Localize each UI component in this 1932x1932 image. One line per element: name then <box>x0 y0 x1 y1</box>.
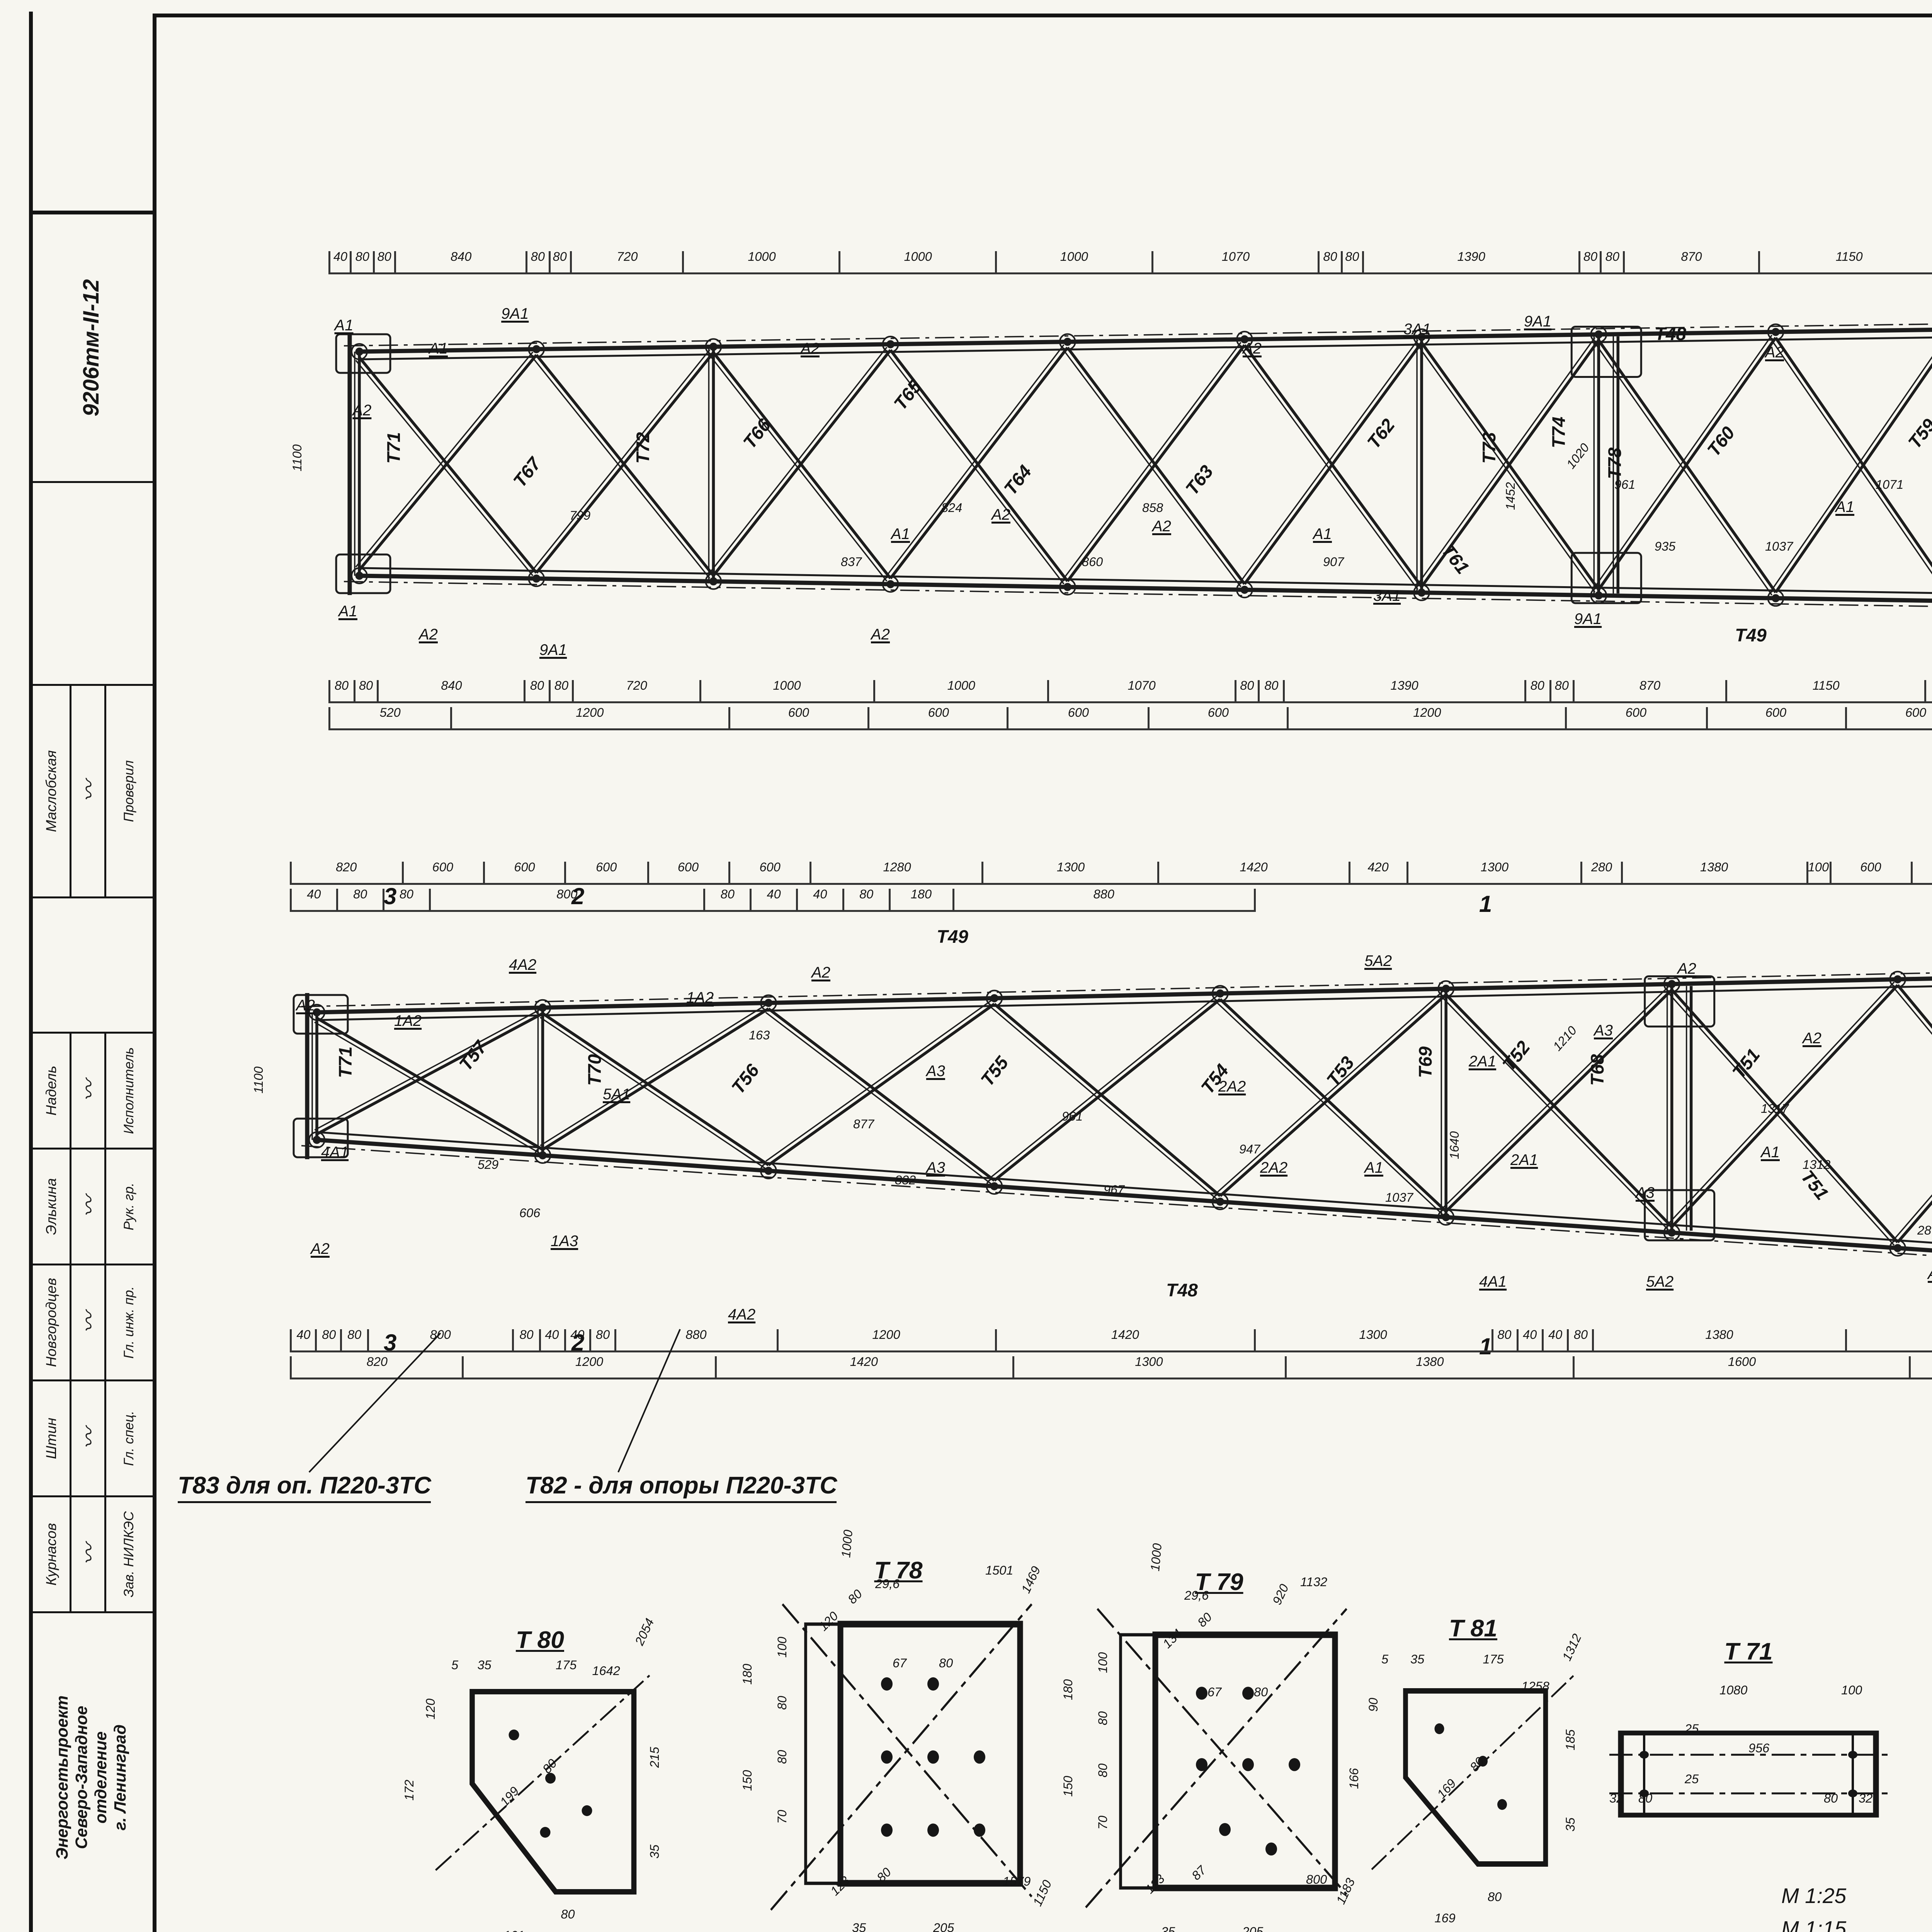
detail-t71: Т 71 1080100259562532808032 <box>1604 1638 1893 1880</box>
dimension-segment: 80 <box>548 251 570 272</box>
dimension-segment: 80 <box>341 1329 366 1350</box>
approval-name: Элькина <box>33 1150 71 1264</box>
t71-bar-shape <box>1604 1665 1893 1859</box>
stamp-rotated-content: Энергосетьпроект Северо-Западное отделен… <box>33 14 153 1932</box>
dimension-segment: 1280 <box>810 862 982 883</box>
dimension-segment: 1310 <box>1908 1356 1932 1378</box>
dimension-segment: 600 <box>1829 862 1911 883</box>
top-truss-drawing <box>328 286 1932 672</box>
dimension-segment: 80 <box>328 680 353 701</box>
checked-name: Маслобская <box>33 686 71 896</box>
dimension-segment: 80 <box>353 680 377 701</box>
dimension-segment: 40 <box>1542 1329 1567 1350</box>
approval-role: Гл. спец. <box>106 1381 153 1495</box>
dimension-segment: 80 <box>372 251 395 272</box>
detail-t78-title: Т 78 <box>753 1557 1043 1584</box>
approval-role: Зав. НИЛКЭС <box>106 1497 153 1611</box>
dimension-segment: 800 <box>366 1329 513 1350</box>
dimension-segment: 1390 <box>1362 251 1578 272</box>
dimension-segment: 1200 <box>450 707 728 728</box>
approval-signature: 〰 <box>71 1150 106 1264</box>
dimension-segment: 1420 <box>995 1329 1253 1350</box>
top-truss-dims-bot2: 52012006006006006001200600600600600910 <box>328 707 1932 730</box>
dimension-segment: 820 <box>290 862 401 883</box>
dimension-segment: 40 <box>290 1329 315 1350</box>
top-truss-dims-top: 4080808408080720100010001000107080801390… <box>328 251 1932 274</box>
dimension-segment: 80 <box>1318 251 1340 272</box>
dimension-segment: 80 <box>1567 1329 1593 1350</box>
dimension-segment: 40 <box>750 889 796 910</box>
dimension-segment: 80 <box>1340 251 1362 272</box>
dimension-segment: 600 <box>565 862 646 883</box>
dimension-segment: 40 <box>538 1329 564 1350</box>
scale-1: М 1:25 <box>1781 1882 1846 1914</box>
dimension-segment: 1600 <box>1844 1329 1932 1350</box>
dimension-segment: 600 <box>401 862 483 883</box>
detail-t81: Т 81 5351759016618535169808016913121258 <box>1352 1615 1594 1924</box>
org-name-1: Энергосетьпроект <box>55 1696 74 1860</box>
dimension-segment: 1000 <box>839 251 995 272</box>
bottom-truss-dims-top2: 40808080080404080180880 <box>290 889 1256 912</box>
dimension-segment: 1300 <box>1406 862 1581 883</box>
dimension-segment: 600 <box>1911 862 1932 883</box>
dimension-segment: 40 <box>290 889 336 910</box>
stamp-blank-1 <box>33 898 153 1034</box>
dimension-segment: 1300 <box>982 862 1157 883</box>
drawing-label: 35 <box>852 1923 866 1932</box>
approval-name: Штин <box>33 1381 71 1495</box>
approval-signature: 〰 <box>71 1381 106 1495</box>
bottom-truss-dims-bot2: 820120014201300138016001310910 <box>290 1356 1932 1379</box>
dimension-segment: 280 <box>1581 862 1620 883</box>
t82-note-text: Т82 - для опоры П220-3ТС <box>526 1472 837 1503</box>
dimension-segment: 600 <box>1845 707 1932 728</box>
approval-signature: 〰 <box>71 1497 106 1611</box>
dimension-segment: 600 <box>646 862 728 883</box>
dimension-segment: 1200 <box>776 1329 995 1350</box>
dimension-segment: 1450 <box>1925 680 1932 701</box>
approval-row: Элькина〰Рук. гр. <box>33 1148 153 1264</box>
bottom-truss-dims-top: 8206006006006006001280130014204201300280… <box>290 862 1932 885</box>
approval-table: Курнасов〰Зав. НИЛКЭСШтин〰Гл. спец.Новгор… <box>33 1034 153 1613</box>
dimension-segment: 1000 <box>873 680 1048 701</box>
dimension-segment: 80 <box>548 680 573 701</box>
drawing-label: 169 <box>1435 1913 1456 1926</box>
scale-notes: М 1:25 М 1:15 <box>1781 1882 1846 1932</box>
approval-role: Исполнитель <box>106 1034 153 1148</box>
dimension-segment: 1070 <box>1048 680 1234 701</box>
dimension-segment: 600 <box>1705 707 1845 728</box>
dimension-segment: 80 <box>842 889 889 910</box>
t79-plate-shape <box>1074 1596 1364 1920</box>
dimension-segment: 80 <box>1600 251 1622 272</box>
org-block: Энергосетьпроект Северо-Западное отделен… <box>33 1613 153 1932</box>
dimension-segment: 520 <box>328 707 450 728</box>
approval-signature: 〰 <box>71 1034 106 1148</box>
dimension-segment: 1390 <box>1282 680 1524 701</box>
detail-t79: Т 79 100029,6113292013480180150100808070… <box>1074 1569 1364 1932</box>
dimension-segment: 80 <box>1524 680 1549 701</box>
bottom-truss-dims-bot1: 4080808008040408088012001420130080404080… <box>290 1329 1932 1352</box>
approval-name: Надель <box>33 1034 71 1148</box>
t83-note-text: Т83 для оп. П220-3ТС <box>178 1472 431 1503</box>
checked-row: Маслобская 〰 Проверил <box>33 686 153 898</box>
dimension-segment: 1420 <box>714 1356 1012 1378</box>
dimension-segment: 870 <box>1622 251 1759 272</box>
dimension-segment: 1000 <box>683 251 839 272</box>
scale-wrapper: Энергосетьпроект Северо-Западное отделен… <box>0 0 1932 1932</box>
drawing-label: 161 <box>503 1930 524 1932</box>
dimension-segment: 1300 <box>1253 1329 1491 1350</box>
dimension-segment: 600 <box>1007 707 1147 728</box>
t81-plate-shape <box>1352 1642 1594 1913</box>
dimension-segment: 600 <box>728 707 867 728</box>
dimension-segment: 1420 <box>1157 862 1348 883</box>
dimension-segment: 40 <box>796 889 842 910</box>
stamp-blank-2 <box>33 483 153 686</box>
t78-plate-shape <box>753 1584 1043 1917</box>
dimension-segment: 600 <box>1147 707 1287 728</box>
dimension-segment: 1380 <box>1592 1329 1844 1350</box>
approval-name: Курнасов <box>33 1497 71 1611</box>
dimension-segment: 1200 <box>463 1356 714 1378</box>
approval-role: Гл. инж. пр. <box>106 1265 153 1379</box>
bottom-truss-view: 3213214А21А2А21А2А24А15А1А3А31А3А24А22А2… <box>290 916 1932 1321</box>
t80-plate-shape <box>410 1654 670 1924</box>
detail-t78: Т 78 100029,6150114691801501008080701208… <box>753 1557 1043 1932</box>
top-truss-dims-bot1: 8080840808072010001000107080801390808087… <box>328 680 1932 703</box>
dimension-segment: 80 <box>383 889 429 910</box>
top-truss-view: А1А19А1А2А2А23А19А1А2А2А2А1А1А1А2А2А1А1А… <box>328 286 1932 672</box>
stamp-column: Энергосетьпроект Северо-Западное отделен… <box>33 14 153 1932</box>
dimension-segment: 80 <box>526 251 548 272</box>
detail-t81-title: Т 81 <box>1352 1615 1594 1642</box>
scale-2: М 1:15 <box>1781 1914 1846 1932</box>
dimension-segment: 40 <box>564 1329 589 1350</box>
detail-t80: Т 80 53517512017221535199808016116422054 <box>410 1627 670 1932</box>
drawing-label: 205 <box>933 1923 954 1932</box>
dimension-segment: 80 <box>513 1329 538 1350</box>
dimension-segment: 1150 <box>1759 251 1932 272</box>
dimension-segment: 80 <box>336 889 383 910</box>
dimension-segment: 1200 <box>1287 707 1565 728</box>
dimension-segment: 80 <box>1258 680 1282 701</box>
t82-note: Т82 - для опоры П220-3ТС <box>526 1472 837 1499</box>
approval-row: Штин〰Гл. спец. <box>33 1379 153 1495</box>
dimension-segment: 720 <box>573 680 699 701</box>
detail-t80-title: Т 80 <box>410 1627 670 1654</box>
dimension-segment: 100 <box>1806 862 1829 883</box>
dimension-segment: 720 <box>570 251 683 272</box>
dimension-segment: 880 <box>952 889 1256 910</box>
bottom-truss-drawing <box>290 916 1932 1321</box>
dimension-segment: 600 <box>867 707 1007 728</box>
drawing-label: 35 <box>1161 1927 1175 1932</box>
dimension-segment: 600 <box>483 862 565 883</box>
org-name-2: Северо-Западное <box>74 1706 93 1849</box>
checked-role: Проверил <box>106 686 153 896</box>
org-name-4: г. Ленинград <box>112 1725 131 1830</box>
dimension-segment: 1000 <box>699 680 873 701</box>
dimension-segment: 80 <box>1578 251 1600 272</box>
dimension-segment: 870 <box>1573 680 1725 701</box>
dimension-segment: 840 <box>377 680 524 701</box>
detail-t79-title: Т 79 <box>1074 1569 1364 1596</box>
paper-edge-line <box>29 12 32 1932</box>
dimension-segment: 800 <box>429 889 703 910</box>
dimension-segment: 80 <box>524 680 548 701</box>
dimension-segment: 880 <box>615 1329 776 1350</box>
approval-row: Новгородцев〰Гл. инж. пр. <box>33 1264 153 1379</box>
drawing-label: 205 <box>1242 1927 1263 1932</box>
dimension-segment: 1380 <box>1284 1356 1573 1378</box>
drawing-sheet: Энергосетьпроект Северо-Западное отделен… <box>0 0 1932 1932</box>
dimension-segment: 80 <box>1234 680 1258 701</box>
dimension-segment: 1600 <box>1573 1356 1908 1378</box>
dimension-segment: 80 <box>703 889 750 910</box>
dimension-segment: 1150 <box>1725 680 1925 701</box>
checked-signature: 〰 <box>71 686 106 896</box>
dimension-segment: 1000 <box>995 251 1151 272</box>
dimension-segment: 180 <box>889 889 952 910</box>
approval-row: Надель〰Исполнитель <box>33 1034 153 1148</box>
approval-name: Новгородцев <box>33 1265 71 1379</box>
dimension-segment: 40 <box>1516 1329 1542 1350</box>
detail-t71-title: Т 71 <box>1604 1638 1893 1665</box>
dimension-segment: 600 <box>728 862 810 883</box>
dimension-segment: 80 <box>1491 1329 1516 1350</box>
dimension-segment: 1380 <box>1620 862 1806 883</box>
dimension-segment: 1300 <box>1012 1356 1284 1378</box>
dimension-segment: 600 <box>1565 707 1705 728</box>
dimension-segment: 840 <box>395 251 526 272</box>
org-name-3: отделение <box>93 1731 112 1823</box>
dimension-segment: 1070 <box>1151 251 1318 272</box>
document-code-box: 9206тм-II-12 <box>33 213 153 483</box>
approval-row: Курнасов〰Зав. НИЛКЭС <box>33 1495 153 1611</box>
dimension-segment: 420 <box>1348 862 1406 883</box>
stamp-blank-3 <box>33 14 153 213</box>
dimension-segment: 80 <box>350 251 372 272</box>
dimension-segment: 80 <box>315 1329 341 1350</box>
checked-cell: Маслобская 〰 Проверил <box>33 686 153 896</box>
approval-role: Рук. гр. <box>106 1150 153 1264</box>
dimension-segment: 820 <box>290 1356 463 1378</box>
approval-signature: 〰 <box>71 1265 106 1379</box>
dimension-segment: 80 <box>589 1329 615 1350</box>
dimension-segment: 80 <box>1549 680 1573 701</box>
dimension-segment: 40 <box>328 251 350 272</box>
t83-note: Т83 для оп. П220-3ТС <box>178 1472 431 1499</box>
